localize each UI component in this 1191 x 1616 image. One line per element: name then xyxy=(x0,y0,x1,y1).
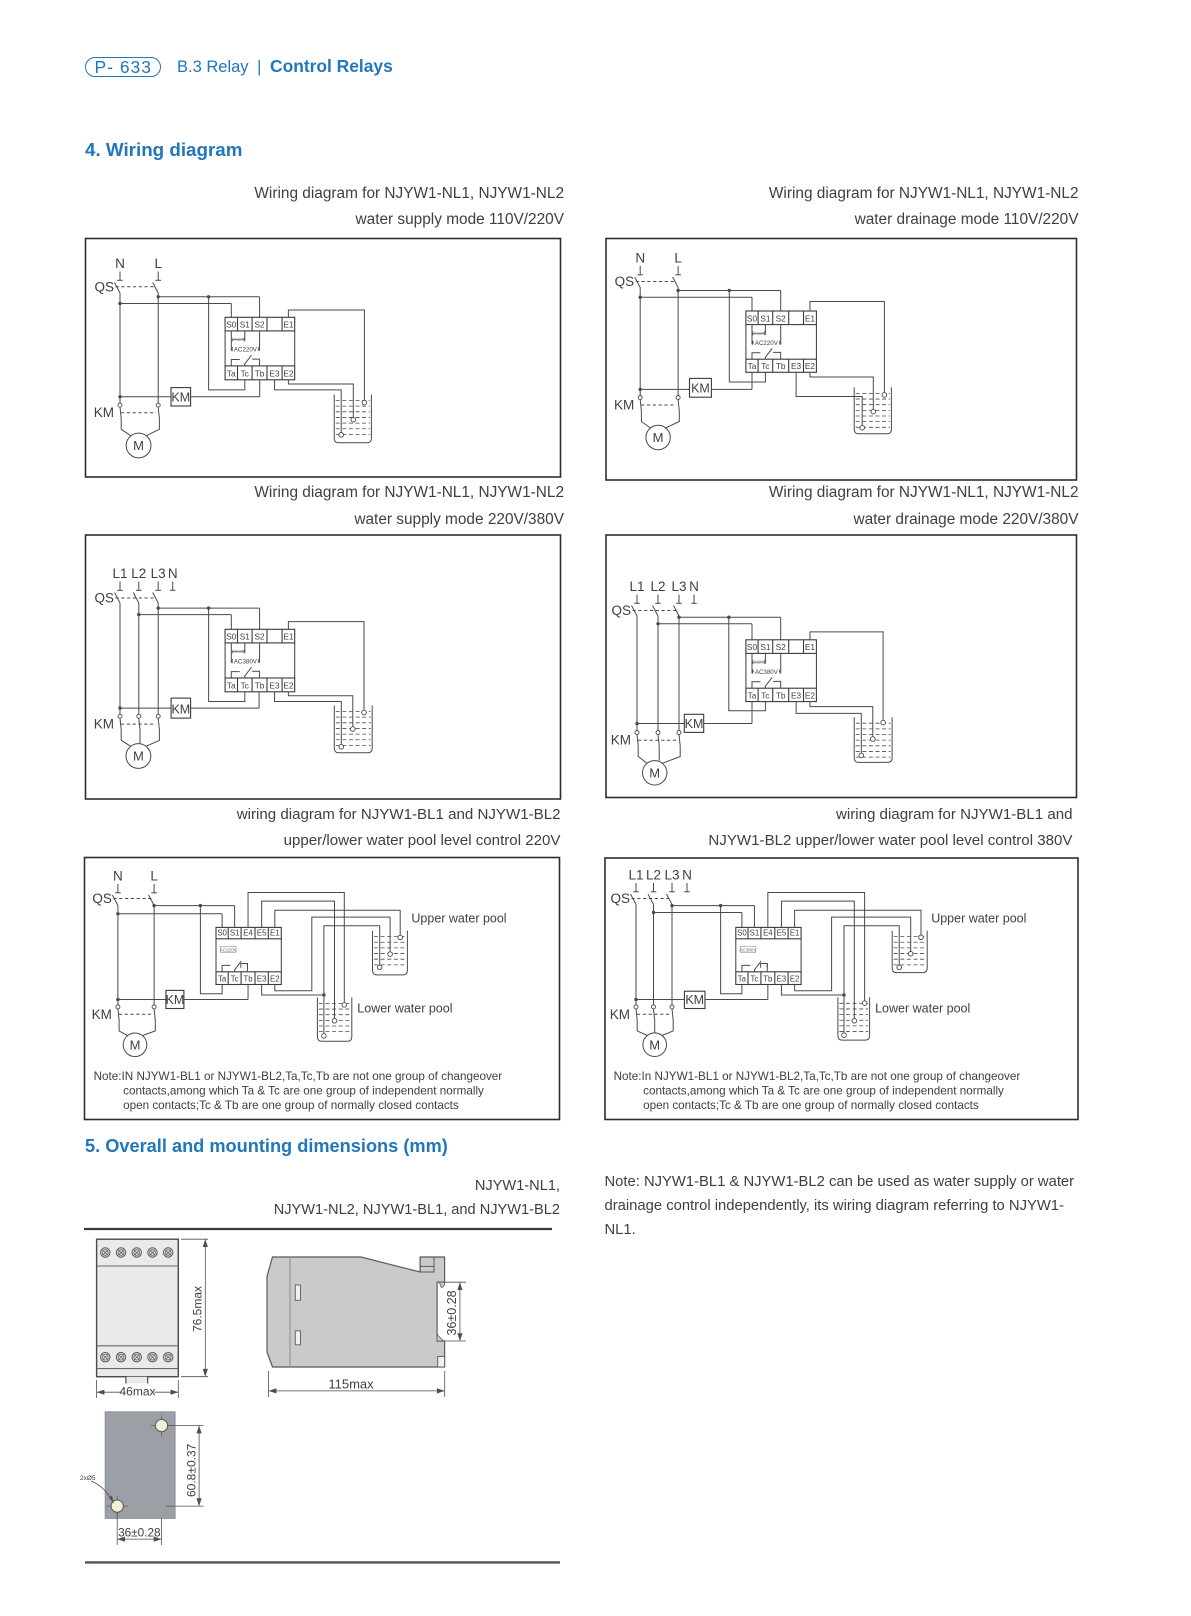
svg-text:S2: S2 xyxy=(776,313,787,323)
svg-text:76.5max: 76.5max xyxy=(191,1286,205,1332)
svg-text:L1: L1 xyxy=(628,868,643,883)
svg-text:E2: E2 xyxy=(283,369,294,379)
svg-text:N: N xyxy=(682,868,692,883)
svg-text:L1: L1 xyxy=(112,566,127,581)
svg-text:L2: L2 xyxy=(650,579,665,594)
svg-text:E1: E1 xyxy=(805,642,816,652)
svg-text:S1: S1 xyxy=(760,313,771,323)
svg-text:AC220V: AC220V xyxy=(755,340,779,347)
svg-text:AC380V: AC380V xyxy=(739,947,757,952)
svg-text:Tb: Tb xyxy=(243,974,253,983)
svg-text:AC220V: AC220V xyxy=(234,346,258,353)
svg-text:Note:In NJYW1-BL1 or NJYW1-BL2: Note:In NJYW1-BL1 or NJYW1-BL2,Ta,Tc,Tb … xyxy=(614,1070,1021,1083)
svg-text:Tb: Tb xyxy=(763,974,773,983)
svg-text:E3: E3 xyxy=(791,690,802,700)
svg-text:M: M xyxy=(653,430,664,445)
svg-text:E3: E3 xyxy=(257,974,267,983)
svg-text:2xØ5: 2xØ5 xyxy=(80,1475,96,1482)
svg-text:Tc: Tc xyxy=(761,361,769,371)
svg-text:N: N xyxy=(168,566,178,581)
svg-text:Ta: Ta xyxy=(218,974,227,983)
svg-text:E2: E2 xyxy=(790,974,800,983)
svg-text:M: M xyxy=(133,438,144,453)
svg-text:Tb: Tb xyxy=(776,361,786,371)
svg-text:AC220V: AC220V xyxy=(220,947,238,952)
svg-text:KM: KM xyxy=(171,390,190,404)
svg-text:M: M xyxy=(133,749,144,764)
svg-text:KM: KM xyxy=(94,405,114,420)
svg-text:Ta: Ta xyxy=(227,369,236,379)
svg-text:L: L xyxy=(150,869,158,884)
svg-text:E5: E5 xyxy=(257,929,267,938)
svg-text:QS: QS xyxy=(615,274,635,289)
svg-text:Note:IN NJYW1-BL1 or NJYW1-BL2: Note:IN NJYW1-BL1 or NJYW1-BL2,Ta,Tc,Tb … xyxy=(94,1070,503,1083)
svg-text:E1: E1 xyxy=(283,320,294,330)
svg-text:Tc: Tc xyxy=(761,690,769,700)
svg-text:KM: KM xyxy=(685,993,704,1007)
svg-text:Ta: Ta xyxy=(738,974,747,983)
svg-text:S1: S1 xyxy=(240,632,251,642)
svg-text:E3: E3 xyxy=(269,681,280,691)
svg-text:KM: KM xyxy=(685,717,704,731)
svg-text:QS: QS xyxy=(94,279,114,294)
svg-text:M: M xyxy=(130,1037,141,1052)
svg-text:KM: KM xyxy=(92,1007,112,1022)
svg-text:E5: E5 xyxy=(777,929,787,938)
svg-text:M: M xyxy=(649,765,660,780)
svg-text:E1: E1 xyxy=(283,632,294,642)
svg-text:E3: E3 xyxy=(777,974,787,983)
svg-text:N: N xyxy=(635,251,645,266)
svg-text:S0: S0 xyxy=(226,320,237,330)
svg-text:S0: S0 xyxy=(747,313,758,323)
svg-text:36±0.28: 36±0.28 xyxy=(445,1290,459,1335)
svg-text:KM: KM xyxy=(691,382,710,396)
svg-text:E2: E2 xyxy=(805,361,816,371)
svg-text:KM: KM xyxy=(171,703,190,717)
svg-text:Lower water pool: Lower water pool xyxy=(875,1001,970,1015)
svg-text:S1: S1 xyxy=(240,320,251,330)
svg-text:E4: E4 xyxy=(763,929,773,938)
svg-text:S2: S2 xyxy=(254,632,265,642)
svg-text:S0: S0 xyxy=(737,929,747,938)
svg-text:Tb: Tb xyxy=(776,690,786,700)
svg-text:E3: E3 xyxy=(791,361,802,371)
svg-text:QS: QS xyxy=(610,891,630,906)
svg-text:L: L xyxy=(154,256,162,271)
svg-text:46max: 46max xyxy=(119,1384,155,1398)
svg-text:36±0.28: 36±0.28 xyxy=(118,1526,161,1540)
svg-text:S0: S0 xyxy=(747,642,758,652)
svg-text:L3: L3 xyxy=(664,868,679,883)
svg-text:S1: S1 xyxy=(760,642,771,652)
svg-text:L2: L2 xyxy=(646,868,661,883)
svg-text:AC110V: AC110V xyxy=(751,331,766,336)
svg-text:AC380V: AC380V xyxy=(755,669,779,676)
svg-text:KM: KM xyxy=(610,1007,630,1022)
svg-text:E1: E1 xyxy=(805,313,816,323)
svg-text:QS: QS xyxy=(611,603,631,618)
svg-text:KM: KM xyxy=(94,717,114,732)
svg-text:E2: E2 xyxy=(283,681,294,691)
svg-text:E1: E1 xyxy=(270,929,280,938)
svg-text:115max: 115max xyxy=(328,1376,374,1391)
svg-text:open contacts;Tc & Tb are one: open contacts;Tc & Tb are one group of n… xyxy=(643,1099,979,1112)
svg-text:Ta: Ta xyxy=(748,690,757,700)
svg-text:KM: KM xyxy=(614,398,634,413)
svg-text:E1: E1 xyxy=(790,929,800,938)
svg-text:AC110V: AC110V xyxy=(230,337,245,342)
svg-text:contacts,among which Ta & Tc a: contacts,among which Ta & Tc are one gro… xyxy=(123,1084,484,1097)
svg-text:60.8±0.37: 60.8±0.37 xyxy=(185,1443,199,1497)
svg-text:N: N xyxy=(113,869,123,884)
svg-text:AC220V: AC220V xyxy=(751,660,767,665)
svg-text:S1: S1 xyxy=(750,929,760,938)
svg-text:Tb: Tb xyxy=(255,681,265,691)
svg-text:contacts,among which Ta & Tc a: contacts,among which Ta & Tc are one gro… xyxy=(643,1084,1004,1097)
svg-text:Tc: Tc xyxy=(231,974,239,983)
svg-text:Tc: Tc xyxy=(241,681,249,691)
svg-text:S0: S0 xyxy=(226,632,237,642)
svg-text:Upper water pool: Upper water pool xyxy=(411,912,506,926)
svg-text:S2: S2 xyxy=(254,320,265,330)
svg-text:Lower water pool: Lower water pool xyxy=(357,1001,452,1015)
svg-text:QS: QS xyxy=(92,891,112,906)
svg-text:KM: KM xyxy=(166,993,185,1007)
svg-text:QS: QS xyxy=(94,591,114,606)
svg-text:Upper water pool: Upper water pool xyxy=(931,912,1026,926)
svg-text:L3: L3 xyxy=(671,579,686,594)
svg-text:L2: L2 xyxy=(131,566,146,581)
svg-text:N: N xyxy=(689,579,699,594)
svg-text:E3: E3 xyxy=(269,369,280,379)
svg-text:AC380V: AC380V xyxy=(234,658,258,665)
svg-text:Ta: Ta xyxy=(748,361,757,371)
svg-text:N: N xyxy=(115,256,125,271)
svg-text:Tc: Tc xyxy=(241,369,249,379)
svg-text:L: L xyxy=(674,251,682,266)
svg-text:E4: E4 xyxy=(243,929,253,938)
svg-text:Ta: Ta xyxy=(227,681,236,691)
svg-text:M: M xyxy=(649,1037,660,1052)
svg-text:S0: S0 xyxy=(217,929,227,938)
svg-text:L3: L3 xyxy=(151,566,166,581)
svg-text:L1: L1 xyxy=(629,579,644,594)
svg-text:KM: KM xyxy=(611,733,631,748)
svg-text:E2: E2 xyxy=(270,974,280,983)
svg-text:AC220V: AC220V xyxy=(230,649,246,654)
svg-text:Tc: Tc xyxy=(751,974,759,983)
svg-text:E2: E2 xyxy=(805,690,816,700)
svg-text:S1: S1 xyxy=(230,929,240,938)
svg-text:open contacts;Tc & Tb are one: open contacts;Tc & Tb are one group of n… xyxy=(123,1099,459,1112)
svg-text:Tb: Tb xyxy=(255,369,265,379)
svg-text:S2: S2 xyxy=(776,642,787,652)
